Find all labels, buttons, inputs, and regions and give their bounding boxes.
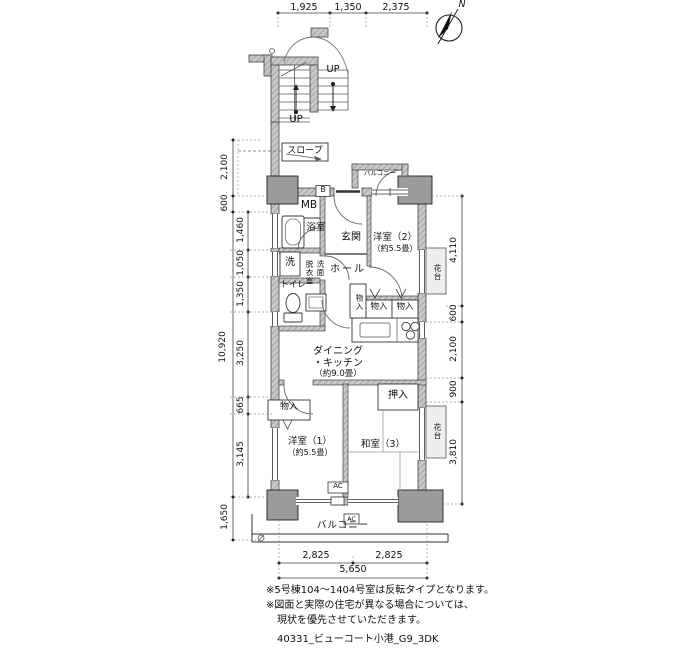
bathtub-icon: [282, 216, 304, 248]
washer-label: 洗: [281, 257, 299, 268]
dim-left-inner-6: 3,145: [237, 429, 247, 479]
bath-label: 浴室: [302, 223, 330, 233]
dim-bottom-total: 5,650: [328, 565, 378, 575]
oshiire-label: 押入: [378, 390, 418, 401]
dim-top-2: 1,350: [323, 3, 373, 13]
storage-label-2: 物入: [366, 303, 392, 312]
dim-left-outer-2: 600: [221, 178, 231, 228]
staircase: [249, 28, 348, 122]
dim-left-inner-5: 665: [237, 380, 247, 430]
dim-left-outer-4: 1,650: [221, 492, 231, 542]
compass-north-label: N: [454, 0, 470, 10]
plan-footer-code: 40331_ビューコート小港_G9_3DK: [277, 634, 497, 645]
storage-label-west1: 物入: [268, 403, 310, 413]
west1-size-label: （約5.5畳）: [282, 449, 338, 458]
dim-bottom-2: 2,825: [364, 551, 414, 561]
storage-label-3: 物入: [392, 303, 418, 312]
dim-right-5: 3,810: [450, 427, 460, 477]
dim-bottom-1: 2,825: [291, 551, 341, 561]
flower-stand-label-1: 花台: [431, 255, 441, 289]
kitchen-counter: [352, 318, 419, 342]
dress-room-label-right: 洗面: [313, 252, 324, 284]
note-line-3: 現状を優先させていただきます。: [277, 615, 497, 626]
dim-right-4: 900: [450, 364, 460, 414]
slope-label: スロープ: [283, 147, 327, 157]
dk-label-3: （約9.0畳）: [308, 370, 368, 379]
dim-left-inner-4: 3,250: [237, 328, 247, 378]
west2-label: 洋室（2）: [369, 233, 421, 243]
dim-right-1: 4,110: [450, 225, 460, 275]
entrance-label: 玄関: [332, 232, 370, 243]
dk-label-1: ダイニング: [308, 346, 368, 357]
up-label-upper: UP: [321, 64, 345, 75]
balcony-upper-label: バルコニー: [354, 170, 406, 177]
flower-stand-label-2: 花台: [431, 414, 441, 448]
hall-label: ホール: [328, 264, 368, 275]
dim-top-3: 2,375: [371, 3, 421, 13]
toilet-icon: [284, 294, 302, 323]
note-line-2: ※図面と実際の住宅が異なる場合については、: [266, 600, 496, 611]
dim-left-inner-3: 1,350: [237, 269, 247, 319]
west1-label: 洋室（1）: [284, 437, 336, 447]
compass-icon: [436, 9, 462, 44]
note-line-1: ※5号棟104〜1404号室は反転タイプとなります。: [266, 585, 496, 596]
storage-label-vertical: 物入: [353, 288, 363, 316]
floor-plan-drawing: [0, 0, 700, 650]
floor-plan: 1,925 1,350 2,375 N UP UP スロープ B MB バルコニ…: [0, 0, 700, 650]
tatami-lines: [348, 410, 418, 497]
toilet-label: トイレ: [276, 281, 310, 290]
dk-label-2: ・キッチン: [308, 358, 368, 369]
sink-icon: [360, 323, 390, 337]
dim-top-1: 1,925: [279, 3, 329, 13]
mb-label: MB: [296, 200, 322, 212]
balcony-lower-label: バルコニー: [312, 521, 374, 531]
b-box-label: B: [316, 186, 330, 194]
dim-left-outer-3: 10,920: [219, 322, 229, 372]
west2-size-label: （約5.5畳）: [367, 245, 423, 254]
up-label-lower: UP: [284, 114, 308, 125]
japanese-room-label: 和室（3）: [352, 440, 414, 450]
ac-label-1: AC: [328, 483, 348, 491]
